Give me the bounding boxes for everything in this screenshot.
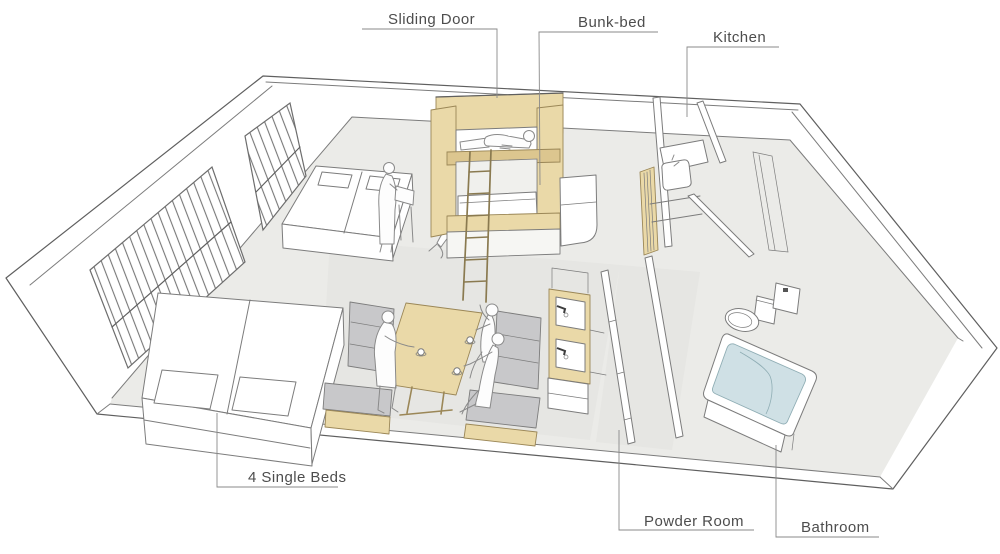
person-seated-left-head [382,311,394,323]
person-standing-head [384,163,395,174]
person-seated-front-head [492,333,504,345]
vanity-sink-2 [556,339,585,372]
person-lying-head [524,131,535,142]
person-seated-rear-head [486,304,498,316]
cup-1 [418,349,424,355]
bunk-base [447,229,560,258]
bench-right-back [494,311,541,389]
single-beds-label: 4 Single Beds [248,469,346,486]
counter-unit [560,175,597,246]
bed-front-pillow-1 [154,370,218,409]
cistern-box [773,283,800,314]
bed-back-pillow-1 [318,172,352,188]
cup-2 [467,337,473,343]
cistern [773,283,800,314]
bathroom-label: Bathroom [801,519,870,536]
floor-plan-svg: Sliding Door Bunk-bed Kitchen 4 Single B… [0,0,1000,554]
powder-room-label: Powder Room [644,513,744,530]
bunk-lower-mattress [458,192,537,217]
vanity-sink-1 [556,297,585,330]
flush-button [783,288,788,292]
sliding-door-label: Sliding Door [388,11,475,28]
counter-unit-body [560,175,597,246]
floor-plan-illustration: Sliding Door Bunk-bed Kitchen 4 Single B… [0,0,1000,554]
single-beds-front [142,293,344,466]
kitchen-label: Kitchen [713,29,766,46]
bed-front-pillow-2 [232,377,296,416]
cup-3 [454,368,460,374]
bunk-bed-label: Bunk-bed [578,14,646,31]
